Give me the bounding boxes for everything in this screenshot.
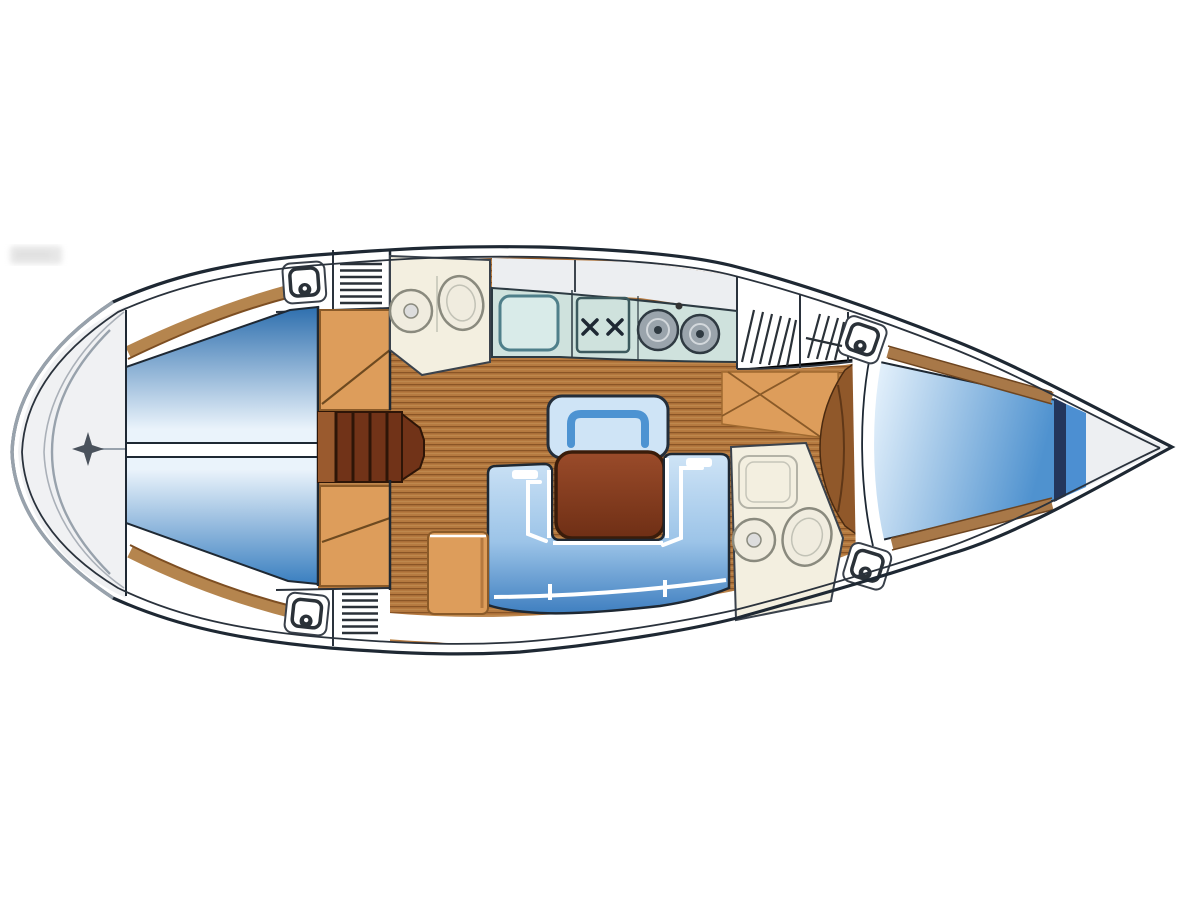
vent-grille-icon bbox=[340, 264, 382, 303]
bench-seat bbox=[548, 396, 668, 458]
saloon-table bbox=[556, 452, 664, 538]
toilet-icon bbox=[390, 290, 432, 332]
locker-starboard bbox=[320, 486, 390, 586]
toilet-icon bbox=[733, 519, 775, 561]
yacht-floor-plan bbox=[0, 0, 1200, 900]
vent-grille-icon bbox=[342, 594, 378, 633]
floor-plan-canvas bbox=[0, 0, 1200, 900]
burner-icon bbox=[638, 310, 678, 350]
deck-hatch-icon bbox=[284, 592, 330, 636]
side-cabinet bbox=[428, 532, 488, 614]
companionway-steps bbox=[318, 412, 424, 482]
burner-icon bbox=[681, 315, 719, 353]
locker-port bbox=[320, 310, 390, 410]
bow-bulkhead bbox=[1054, 398, 1066, 502]
aft-head-room bbox=[390, 256, 490, 375]
watermark-smudge bbox=[10, 246, 62, 264]
stove-knob bbox=[676, 303, 683, 310]
bow-berth-wedge bbox=[1066, 404, 1086, 496]
galley-sink-icon bbox=[500, 296, 558, 350]
